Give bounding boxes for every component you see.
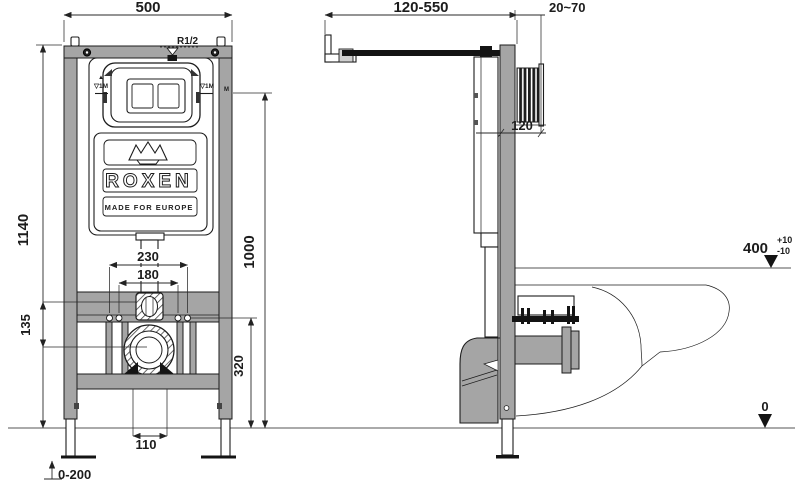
stud-nut-6 <box>572 306 575 324</box>
stud-nut-5 <box>567 306 570 324</box>
recess-latch-right <box>196 92 200 103</box>
brand-name: ROXEN <box>105 171 193 192</box>
foot-plate-left <box>61 456 96 459</box>
foot-clamp-right <box>217 403 222 409</box>
dim-230: 230 <box>137 249 159 264</box>
flush-downpipe-side <box>485 247 498 337</box>
strut-3 <box>177 322 183 374</box>
adjustable-foot-right <box>221 419 230 456</box>
outlet-cap <box>571 331 579 369</box>
dim-180: 180 <box>137 267 159 282</box>
adjustable-foot-side <box>502 419 513 455</box>
bar-bolt <box>504 406 509 411</box>
side-view <box>325 35 791 459</box>
dim-400-tol-plus: +10 <box>777 235 792 245</box>
inlet-label: R1/2 <box>177 36 199 47</box>
brand-tagline: MADE FOR EUROPE <box>105 203 194 212</box>
level-marker-0 <box>758 414 772 428</box>
dim-wall: 20~70 <box>549 0 586 15</box>
outlet-pipe <box>515 336 562 364</box>
lower-crossband <box>77 374 219 389</box>
tank-side-clip2 <box>474 120 478 125</box>
bowl-under-curve <box>516 366 642 416</box>
dim-0200: 0-200 <box>58 467 91 482</box>
level-marker-400 <box>764 255 778 268</box>
dim-135: 135 <box>18 314 33 336</box>
stud-hole-inner-right <box>175 315 181 321</box>
inlet-block <box>168 55 178 61</box>
bowl-inner-curve <box>592 287 642 366</box>
flush-pipe-flange <box>136 233 164 240</box>
dim-0: 0 <box>761 399 768 414</box>
dim-500: 500 <box>135 0 160 16</box>
hanger-tab-right <box>217 37 225 46</box>
installation-drawing: ▲ ▽1M ▽1M M ROXEN MADE FOR EUROPE <box>0 0 800 482</box>
bowl-kink <box>642 352 660 366</box>
dim-120: 120 <box>511 118 533 133</box>
tank-mark-left: ▽1M <box>93 83 108 90</box>
stud-hole-outer-left <box>107 315 113 321</box>
outlet-flange <box>562 327 571 373</box>
front-view: ▲ ▽1M ▽1M M ROXEN MADE FOR EUROPE <box>61 36 236 459</box>
stud-hole-inner-left <box>116 315 122 321</box>
tank-mark-right: ▽1M <box>199 83 214 90</box>
tank-side-bottom <box>481 233 498 247</box>
dim-110: 110 <box>136 437 157 452</box>
flush-bend-bellows <box>517 68 539 122</box>
flush-button-left <box>132 84 153 108</box>
dim-arm: 120-550 <box>393 0 448 16</box>
dim-1140: 1140 <box>15 214 32 247</box>
frame-bar-side <box>500 45 515 419</box>
flush-button-right <box>158 84 179 108</box>
left-rail <box>64 46 77 419</box>
meter-mark: M <box>224 87 229 93</box>
drain-opening-inner <box>136 337 162 363</box>
hanger-tab-left <box>71 37 79 46</box>
installation-drawing-page: ▲ ▽1M ▽1M M ROXEN MADE FOR EUROPE <box>0 0 800 482</box>
tank-side <box>474 57 498 233</box>
adjustable-foot-left <box>66 419 75 456</box>
foot-plate-side <box>496 455 519 459</box>
stud-nut-1 <box>521 308 524 324</box>
strut-4 <box>190 322 196 374</box>
fitting-bore <box>142 297 158 317</box>
corner-bolt-right-center <box>214 51 216 53</box>
stud-nut-3 <box>543 310 546 324</box>
logo-panel: ROXEN MADE FOR EUROPE <box>94 133 207 231</box>
corner-bolt-left-center <box>86 51 88 53</box>
stud-hole-outer-right <box>185 315 191 321</box>
dim-320: 320 <box>231 355 246 377</box>
strut-1 <box>106 322 112 374</box>
bowl-front-curve <box>660 285 729 352</box>
dim-400-tol-minus: -10 <box>777 246 790 256</box>
dim-1000: 1000 <box>241 235 258 268</box>
tank-side-clip1 <box>474 93 478 98</box>
foot-clamp-left <box>74 403 79 409</box>
stud-nut-4 <box>551 310 554 324</box>
dim-400: 400 <box>743 240 768 257</box>
tank-mark-arrow: ▲ <box>98 75 104 81</box>
support-arm <box>342 50 500 56</box>
foot-plate-right <box>201 456 236 459</box>
stud-nut-2 <box>527 308 530 324</box>
